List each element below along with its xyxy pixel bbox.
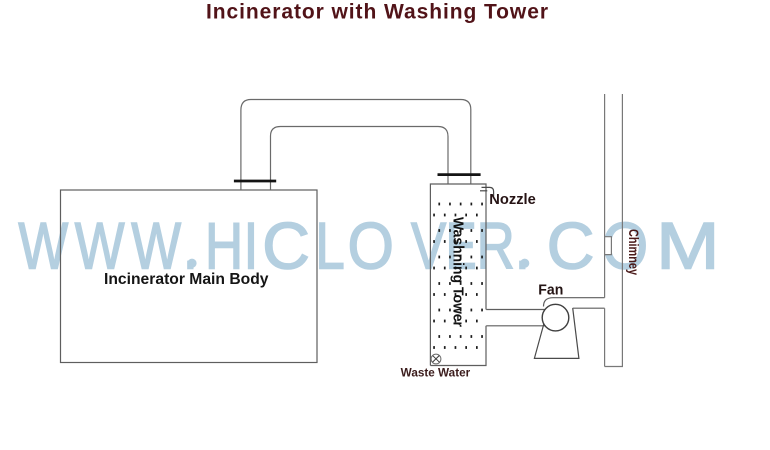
svg-text:Fan: Fan <box>538 282 563 299</box>
svg-text:Waste Water: Waste Water <box>401 368 471 380</box>
svg-text:C: C <box>262 209 310 283</box>
svg-text:Nozzle: Nozzle <box>489 191 536 208</box>
svg-text:O: O <box>348 210 394 284</box>
svg-text:Incinerator Main Body: Incinerator Main Body <box>104 271 269 288</box>
svg-text:C: C <box>547 209 595 283</box>
svg-text:Chimney: Chimney <box>626 229 641 275</box>
svg-text:L: L <box>315 209 344 283</box>
svg-text:R.: R. <box>477 209 530 283</box>
svg-text:Washning Tower: Washning Tower <box>450 217 467 327</box>
svg-text:V: V <box>411 209 446 283</box>
svg-text:M: M <box>656 210 719 283</box>
svg-text:Incinerator with Washing Tower: Incinerator with Washing Tower <box>206 1 548 24</box>
